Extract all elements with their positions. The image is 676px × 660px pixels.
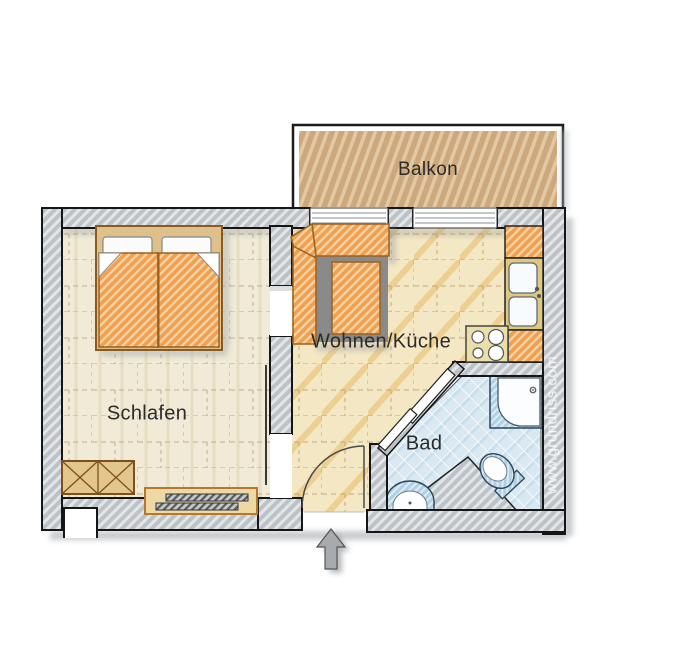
faucet (535, 287, 539, 291)
radiator (145, 488, 257, 514)
watermark: www.grundriss.com (544, 356, 561, 495)
wall-bottom-right (367, 510, 565, 532)
wardrobe (62, 461, 134, 494)
floor-plan: Balkon Schlafen Wohnen/Küche Bad www.gru… (0, 0, 676, 660)
living-kitchen-label: Wohnen/Küche (311, 331, 451, 354)
wall-pier-balcony (388, 208, 413, 228)
wall-interior-upper (270, 226, 292, 286)
stove (466, 326, 508, 362)
wall-bottom-center (258, 498, 302, 530)
corner-shower (490, 374, 542, 428)
balcony-label: Balkon (398, 159, 458, 181)
bathroom-label: Bad (406, 433, 443, 456)
wall-niche (64, 508, 97, 538)
wall-interior-lower (270, 336, 292, 434)
kitchen-counter (505, 226, 543, 362)
bedroom-label: Schlafen (107, 403, 187, 426)
wall-left (42, 208, 62, 530)
double-bed (96, 226, 229, 356)
wall-kitchen-bath (453, 362, 543, 376)
